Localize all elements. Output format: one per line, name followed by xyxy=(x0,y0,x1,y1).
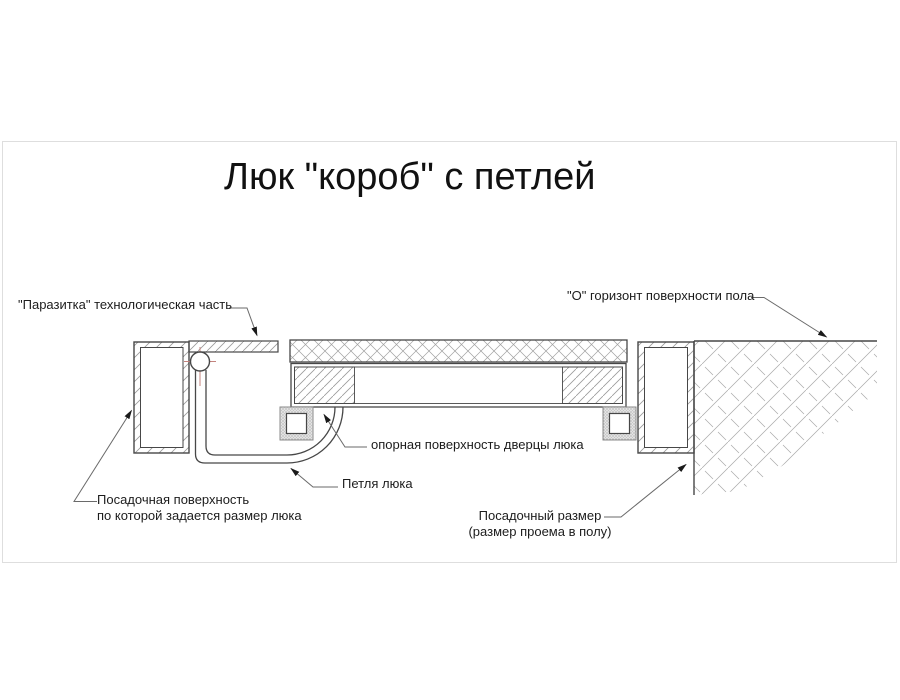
label-seating-size-line2: (размер проема в полу) xyxy=(455,524,625,540)
support-tube-right xyxy=(603,407,636,440)
label-seating-surface: Посадочная поверхность по которой задает… xyxy=(97,492,302,524)
right-frame-inner xyxy=(645,348,688,448)
technical-drawing-canvas xyxy=(0,0,900,700)
left-frame-profile xyxy=(134,342,189,453)
label-bearing-surface: опорная поверхность дверцы люка xyxy=(371,437,584,453)
tube-left-inner xyxy=(287,414,307,434)
leader-hinge xyxy=(291,469,338,488)
right-frame-profile xyxy=(638,342,694,453)
leader-floor-horizon xyxy=(751,298,827,338)
label-parasitka: "Паразитка" технологическая часть xyxy=(18,297,232,313)
left-frame-inner xyxy=(141,348,184,448)
door-top-slab xyxy=(290,340,627,362)
pivot-circle xyxy=(191,352,210,371)
label-seating-surface-line1: Посадочная поверхность xyxy=(97,492,302,508)
leader-seating-surface xyxy=(74,411,132,502)
diagram-page: Люк "короб" с петлей "Паразитка" техноло… xyxy=(0,0,900,700)
door-end-box-left xyxy=(295,367,355,404)
parasitka-flange xyxy=(189,341,278,352)
page-title: Люк "короб" с петлей xyxy=(224,155,595,199)
floor-hatch-area xyxy=(694,341,877,495)
label-seating-size: Посадочный размер (размер проема в полу) xyxy=(455,508,625,540)
label-seating-size-line1: Посадочный размер xyxy=(455,508,625,524)
leader-parasitka xyxy=(229,308,257,336)
support-tube-left xyxy=(280,407,313,440)
hatch-door xyxy=(290,340,627,407)
label-seating-surface-line2: по которой задается размер люка xyxy=(97,508,302,524)
door-end-box-right xyxy=(563,367,623,404)
tube-right-inner xyxy=(610,414,630,434)
label-floor-horizon: "О" горизонт поверхности пола xyxy=(567,288,754,304)
floor-section xyxy=(694,341,877,495)
label-hinge: Петля люка xyxy=(342,476,413,492)
